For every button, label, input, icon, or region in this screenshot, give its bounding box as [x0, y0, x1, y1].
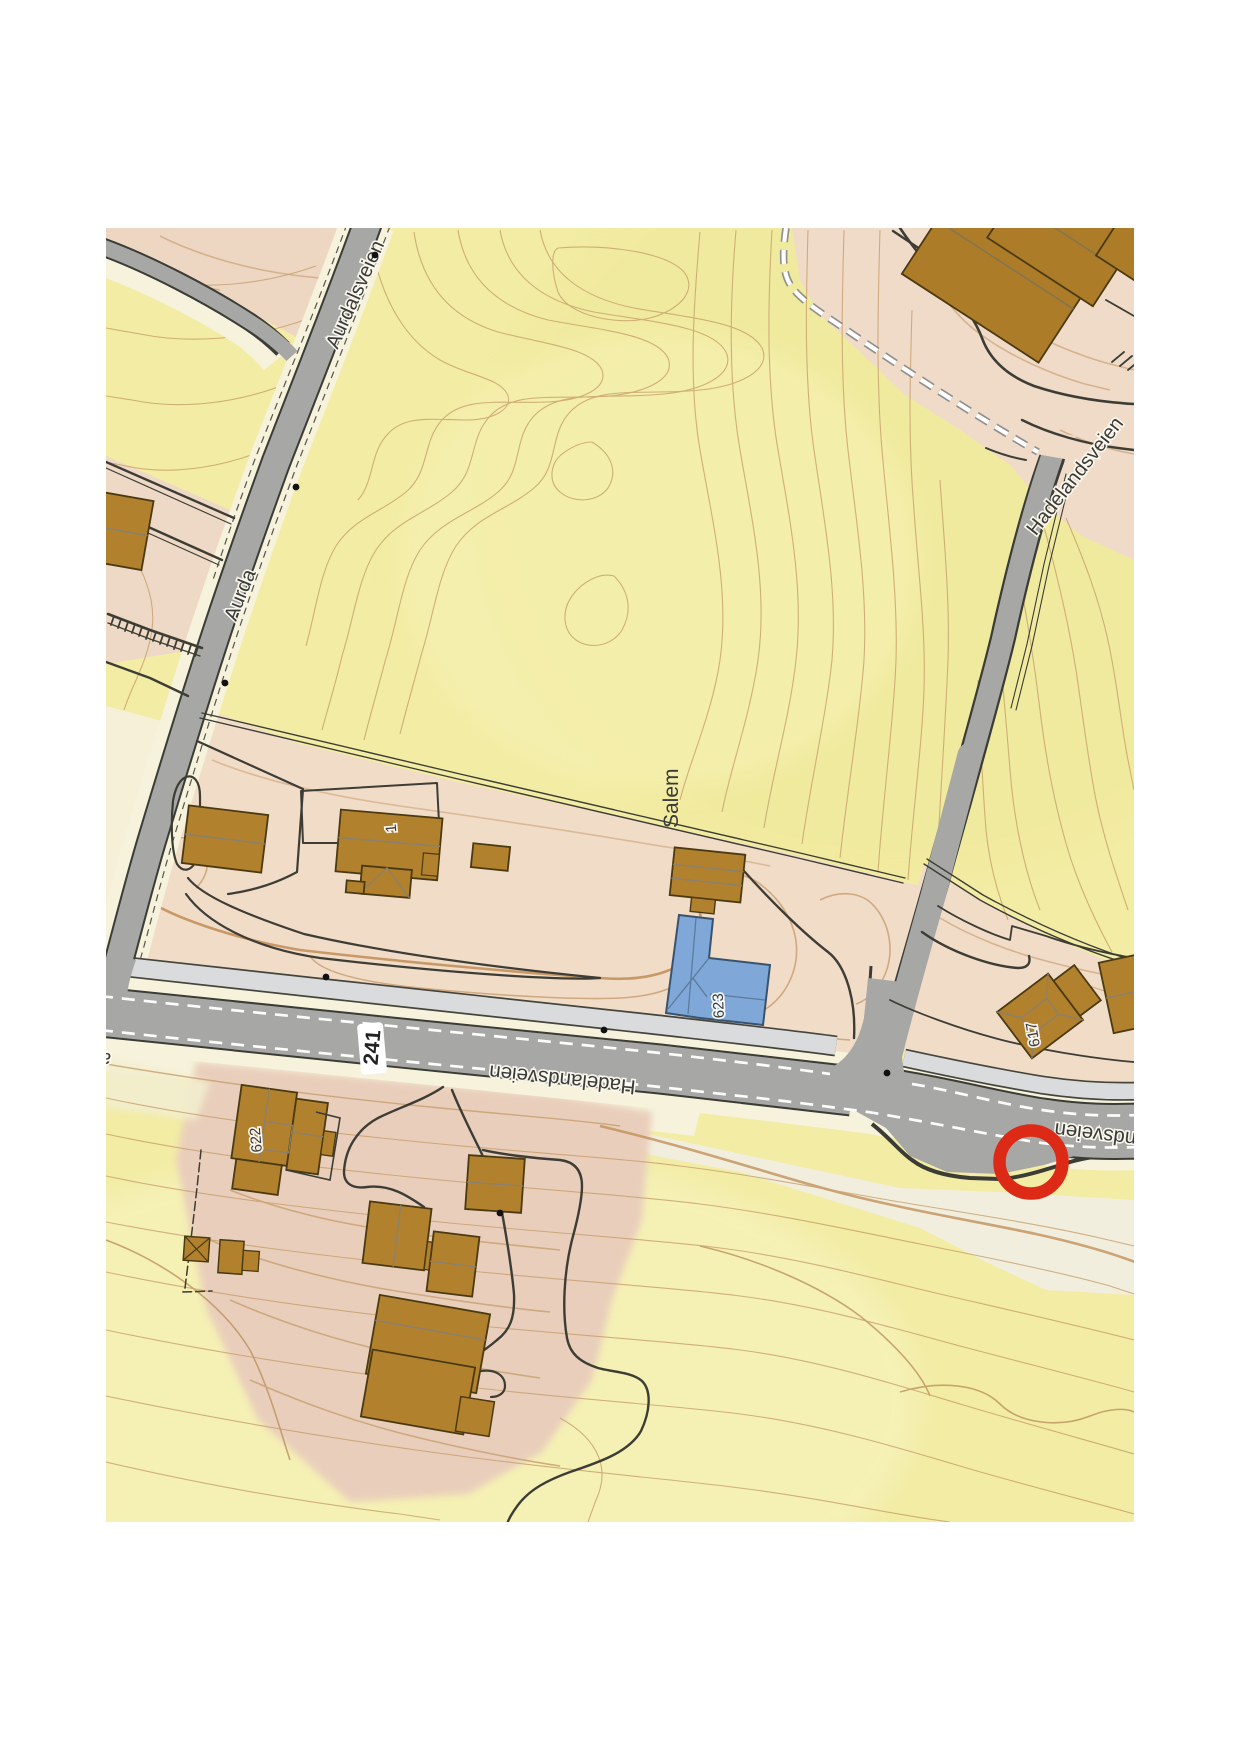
svg-text:241: 241 [360, 1029, 386, 1066]
svg-text:Salem: Salem [660, 768, 683, 828]
svg-text:622: 622 [247, 1127, 266, 1153]
svg-text:1: 1 [383, 823, 401, 833]
svg-text:623: 623 [710, 993, 728, 1019]
